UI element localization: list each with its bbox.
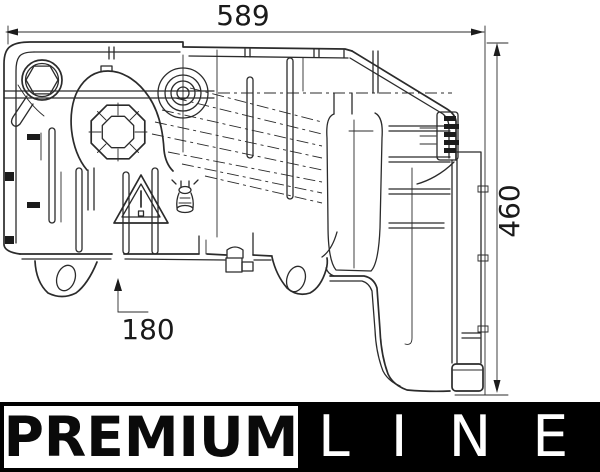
level-lines bbox=[152, 88, 322, 203]
premium-line-banner: PREMIUM LINE bbox=[0, 402, 600, 472]
coolant-jug-icon bbox=[172, 180, 198, 213]
premium-label: PREMIUM bbox=[4, 410, 299, 465]
width-label: 589 bbox=[216, 0, 269, 32]
right-rib-lines bbox=[389, 126, 480, 338]
premium-badge: PREMIUM bbox=[4, 406, 298, 468]
dimension-width: 589 bbox=[5, 0, 485, 395]
outlet-fitting bbox=[226, 247, 253, 272]
connector-block bbox=[417, 112, 459, 184]
rib-lines bbox=[5, 47, 378, 255]
line-label: LINE bbox=[318, 402, 600, 472]
offset-label: 180 bbox=[121, 313, 174, 346]
technical-drawing: 589 460 180 bbox=[0, 0, 600, 402]
height-label: 460 bbox=[493, 184, 526, 237]
warning-triangle-icon bbox=[114, 175, 168, 223]
mounting-foot bbox=[35, 261, 97, 297]
port-boss-icon bbox=[158, 55, 208, 152]
dimension-height: 460 bbox=[455, 43, 526, 395]
mounting-feet bbox=[35, 257, 327, 297]
expansion-tank-drawing-page: 589 460 180 bbox=[0, 0, 600, 472]
mounting-hole bbox=[283, 264, 308, 294]
dimension-offset: 180 bbox=[114, 278, 175, 346]
seam-lines bbox=[4, 91, 452, 98]
mounting-hole bbox=[53, 263, 78, 293]
